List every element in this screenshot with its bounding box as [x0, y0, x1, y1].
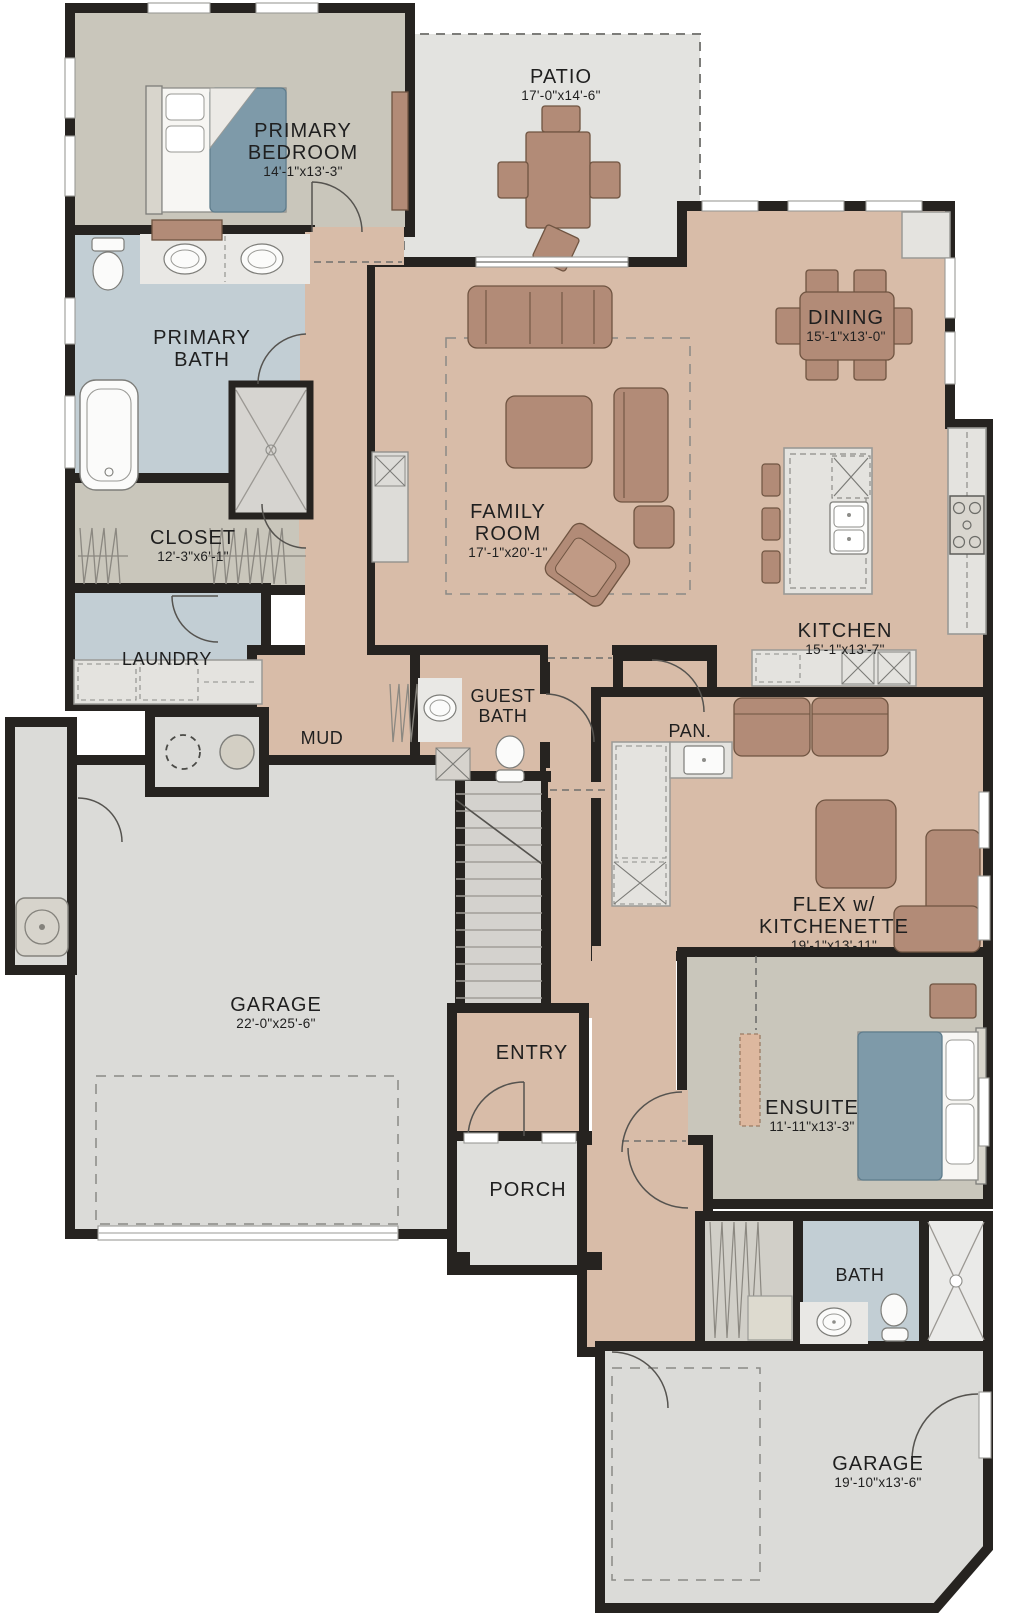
room-label-pantry: PAN.: [668, 722, 711, 742]
room-label-guest-bath: GUEST BATH: [463, 687, 543, 727]
ensuite-cabinet: [740, 1034, 760, 1126]
flex-ottoman: [816, 800, 896, 888]
room-label-mud: MUD: [301, 729, 344, 749]
guest-sink-icon: [424, 695, 456, 721]
kitchen-sink-icon: [830, 502, 868, 554]
kitchen-right-counter: [948, 428, 986, 634]
room-label-patio: PATIO 17'-0"x14'-6": [521, 66, 600, 104]
rear-hall-floor: [582, 1140, 708, 1352]
garage-rear-door: [979, 1392, 991, 1458]
water-heater-icon: [16, 898, 68, 956]
room-label-laundry: LAUNDRY: [122, 650, 212, 670]
floor-plan: PRIMARY BEDROOM 14'-1"x13'-3" PATIO 17'-…: [0, 0, 1024, 1624]
nightstand: [930, 984, 976, 1018]
room-label-kitchen: KITCHEN 15'-1"x13'-7": [798, 620, 893, 658]
guest-toilet-icon: [496, 736, 524, 782]
room-label-garage-main: GARAGE 22'-0"x25'-6": [230, 994, 322, 1032]
room-label-family-room: FAMILY ROOM 17'-1"x20'-1": [453, 501, 563, 561]
ottoman-icon: [634, 506, 674, 548]
bathtub-icon: [80, 380, 138, 490]
room-label-flex: FLEX w/ KITCHENETTE 19'-1"x13'-11": [754, 894, 914, 954]
shower-icon: [232, 384, 310, 516]
bar-stools-icon: [762, 464, 780, 583]
room-label-closet: CLOSET 12'-3"x6'-1": [150, 527, 236, 565]
media-console: [372, 452, 408, 562]
toilet-icon: [92, 238, 124, 290]
flex-exterior-door: [978, 876, 990, 940]
kitchen-island: [784, 448, 872, 594]
room-label-porch: PORCH: [489, 1179, 566, 1201]
coffee-table-icon: [506, 396, 592, 468]
room-label-bath: BATH: [835, 1266, 884, 1286]
room-label-primary-bedroom: PRIMARY BEDROOM 14'-1"x13'-3": [241, 120, 365, 180]
ensuite-bed-icon: [858, 1028, 986, 1184]
room-label-dining: DINING 15'-1"x13'-0": [806, 307, 885, 345]
room-label-primary-bath: PRIMARY BATH: [146, 327, 258, 371]
range-icon: [950, 496, 984, 554]
dining-cabinet: [902, 212, 950, 258]
bedroom-bench: [152, 220, 222, 240]
room-label-ensuite: ENSUITE 11'-11"x13'-3": [765, 1097, 859, 1135]
bath2-toilet-icon: [881, 1294, 908, 1341]
entry-floor: [452, 1008, 584, 1144]
double-vanity-icon: [140, 234, 310, 284]
room-label-entry: ENTRY: [496, 1042, 568, 1064]
great-room-floor: [370, 206, 988, 694]
garage-rear-floor: [600, 1346, 988, 1608]
bedroom-dresser: [392, 92, 408, 210]
floor-plan-drawing: [0, 0, 1024, 1624]
family-sofa-icon: [468, 286, 612, 348]
sectional-sofa-icon: [614, 388, 668, 502]
room-label-garage-rear: GARAGE 19'-10"x13'-6": [832, 1453, 924, 1491]
